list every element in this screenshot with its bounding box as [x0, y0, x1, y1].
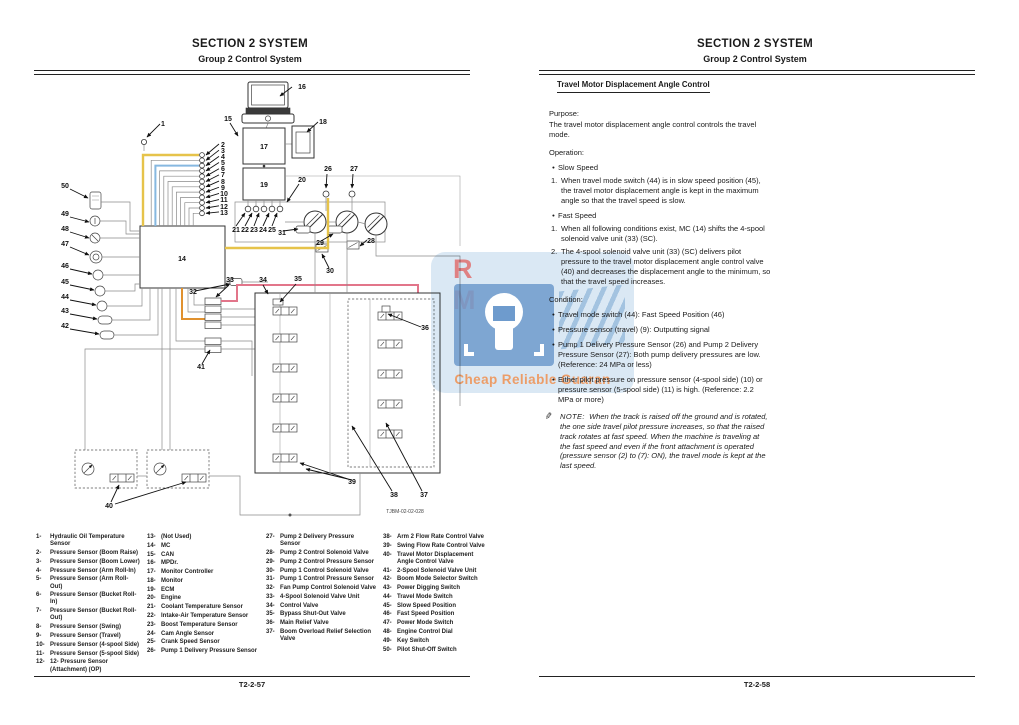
- legend-item: 40-Travel Motor Displacement Angle Contr…: [383, 552, 487, 566]
- diagram-label-39: 39: [348, 479, 356, 486]
- rp-num: 2.The 4-spool solenoid valve unit (33) (…: [549, 247, 771, 287]
- diagram-label-34: 34: [259, 277, 267, 284]
- pump2-control-solenoid: [347, 241, 359, 249]
- signal-line: [155, 166, 199, 226]
- rp-label: Condition:: [549, 295, 771, 305]
- diagram-code: TJBM-02-02-028: [386, 509, 424, 515]
- legend-item: 34-Control Valve: [266, 603, 376, 610]
- legend-item: 46-Fast Speed Position: [383, 611, 487, 618]
- diagram-label-37: 37: [420, 492, 428, 499]
- diagram-label-25: 25: [268, 227, 276, 234]
- oil-temp-sensor: [141, 139, 146, 144]
- legend-item: 29-Pump 2 Control Pressure Sensor: [266, 559, 376, 566]
- diagram-label-28: 28: [367, 238, 375, 245]
- diagram-label-16: 16: [298, 84, 306, 91]
- header-rule: [539, 70, 975, 75]
- rp-num: 1.When travel mode switch (44) is in slo…: [549, 176, 771, 206]
- legend-item: 31-Pump 1 Control Pressure Sensor: [266, 576, 376, 583]
- legend-item: 14-MC: [147, 543, 259, 550]
- legend-item: 27-Pump 2 Delivery Pressure Sensor: [266, 534, 376, 548]
- section-title: SECTION 2 SYSTEM: [30, 38, 470, 50]
- legend-item: 19-ECM: [147, 587, 259, 594]
- diagram-label-49: 49: [61, 211, 69, 218]
- diagram-label-23: 23: [250, 227, 258, 234]
- diagram-label-33: 33: [226, 277, 234, 284]
- diagram-label-7: 7: [221, 172, 225, 179]
- legend-item: 4-Pressure Sensor (Arm Roll-In): [36, 568, 140, 575]
- legend-item: 44-Travel Mode Switch: [383, 594, 487, 601]
- legend-item: 13-(Not Used): [147, 534, 259, 541]
- diagram-label-36: 36: [421, 325, 429, 332]
- rp-label: Operation:: [549, 148, 771, 158]
- legend-item: 30-Pump 1 Control Solenoid Valve: [266, 568, 376, 575]
- control-system-diagram: 1611518171920262723456789101112132122232…: [30, 76, 500, 528]
- legend-item: 18-Monitor: [147, 578, 259, 585]
- legend-item: 47-Power Mode Switch: [383, 620, 487, 627]
- footer-rule: [539, 676, 975, 677]
- diagram-label-18: 18: [319, 119, 327, 126]
- diagram-label-22: 22: [241, 227, 249, 234]
- diagram-label-31: 31: [278, 230, 286, 237]
- diagram-label-44: 44: [61, 294, 69, 301]
- diagram-label-45: 45: [61, 279, 69, 286]
- legend-item: 25-Crank Speed Sensor: [147, 639, 259, 646]
- section-title: SECTION 2 SYSTEM: [535, 38, 975, 50]
- diagram-label-29: 29: [316, 240, 324, 247]
- page-right: SECTION 2 SYSTEM Group 2 Control System …: [535, 0, 1005, 725]
- note-pencil-icon: ✎: [544, 410, 554, 423]
- legend-item: 32-Fan Pump Control Solenoid Valve: [266, 585, 376, 592]
- legend-item: 21-Coolant Temperature Sensor: [147, 604, 259, 611]
- legend-item: 37-Boom Overload Relief Selection Valve: [266, 629, 376, 643]
- pump1-delivery-sensor: [323, 191, 329, 197]
- legend-column: 13-(Not Used)14-MC15-CAN16-MPDr.17-Monit…: [147, 534, 259, 675]
- legend-item: 28-Pump 2 Control Solenoid Valve: [266, 550, 376, 557]
- page-header: SECTION 2 SYSTEM Group 2 Control System: [535, 38, 975, 64]
- legend-item: 10-Pressure Sensor (4-spool Side): [36, 642, 140, 649]
- legend-item: 1-Hydraulic Oil Temperature Sensor: [36, 534, 140, 548]
- diagram-label-13: 13: [220, 210, 228, 217]
- legend-item: 8-Pressure Sensor (Swing): [36, 624, 140, 631]
- rp-label: Purpose:: [549, 109, 771, 119]
- diagram-label-41: 41: [197, 364, 205, 371]
- rp-bullet: •Slow Speed: [549, 163, 771, 173]
- legend-item: 45-Slow Speed Position: [383, 603, 487, 610]
- legend-item: 16-MPDr.: [147, 560, 259, 567]
- legend-item: 5-Pressure Sensor (Arm Roll-Out): [36, 576, 140, 590]
- diagram-label-27: 27: [350, 166, 358, 173]
- legend-item: 48-Engine Control Dial: [383, 629, 487, 636]
- rp-para: The travel motor displacement angle cont…: [549, 120, 771, 140]
- legend-item: 33-4-Spool Solenoid Valve Unit: [266, 594, 376, 601]
- rp-num: 1.When all following conditions exist, M…: [549, 224, 771, 244]
- legend-item: 26-Pump 1 Delivery Pressure Sensor: [147, 648, 259, 655]
- diagram-label-11: 11: [220, 197, 228, 204]
- laptop-icon: [242, 82, 294, 128]
- legend-item: 42-Boom Mode Selector Switch: [383, 576, 487, 583]
- legend-item: 35-Bypass Shut-Out Valve: [266, 611, 376, 618]
- sensor-harness: [151, 144, 219, 226]
- diagram-label-32: 32: [189, 289, 197, 296]
- legend-item: 2-Pressure Sensor (Boom Raise): [36, 550, 140, 557]
- legend-item: 11-Pressure Sensor (5-spool Side): [36, 651, 140, 658]
- rp-bullet: •Fast Speed: [549, 211, 771, 221]
- legend-column: 1-Hydraulic Oil Temperature Sensor2-Pres…: [36, 534, 140, 675]
- legend-item: 20-Engine: [147, 595, 259, 602]
- rp-bullet: •Either pilot pressure on pressure senso…: [549, 375, 771, 405]
- pump2-control-pressure-sensor: [328, 226, 342, 233]
- travel-motor-left: [75, 450, 137, 488]
- diagram-label-47: 47: [61, 241, 69, 248]
- diagram-label-42: 42: [61, 323, 69, 330]
- legend-item: 36-Main Relief Valve: [266, 620, 376, 627]
- diagram-label-21: 21: [232, 227, 240, 234]
- diagram-label-46: 46: [61, 263, 69, 270]
- diagram-label-17: 17: [260, 144, 268, 151]
- legend-item: 12-12- Pressure Sensor (Attachment) (OP): [36, 659, 140, 673]
- engine-sensors: [245, 206, 283, 212]
- legend-item: 15-CAN: [147, 552, 259, 559]
- diagram-label-43: 43: [61, 308, 69, 315]
- rp-bullet: •Pressure sensor (travel) (9): Outputtin…: [549, 325, 771, 335]
- rp-bullet: •Pump 1 Delivery Pressure Sensor (26) an…: [549, 340, 771, 370]
- group-subtitle: Group 2 Control System: [30, 54, 470, 64]
- diagram-label-38: 38: [390, 492, 398, 499]
- right-page-body: Travel Motor Displacement Angle ControlP…: [549, 80, 771, 471]
- four-spool-solenoid-unit: [205, 298, 221, 329]
- legend-item: 17-Monitor Controller: [147, 569, 259, 576]
- pump1-control-pressure-sensor: [296, 226, 310, 233]
- rp-note: ✎NOTE: When the track is raised off the …: [549, 412, 771, 472]
- rp-heading: Travel Motor Displacement Angle Control: [557, 80, 710, 93]
- legend-item: 6-Pressure Sensor (Bucket Roll-In): [36, 592, 140, 606]
- footer-rule: [34, 676, 470, 677]
- diagram-label-40: 40: [105, 503, 113, 510]
- diagram-label-19: 19: [260, 182, 268, 189]
- diagram-label-15: 15: [224, 116, 232, 123]
- legend-item: 39-Swing Flow Rate Control Valve: [383, 543, 487, 550]
- rp-bullet: •Travel mode switch (44): Fast Speed Pos…: [549, 310, 771, 320]
- legend-item: 38-Arm 2 Flow Rate Control Valve: [383, 534, 487, 541]
- legend-item: 50-Pilot Shut-Off Switch: [383, 647, 487, 654]
- diagram-label-48: 48: [61, 226, 69, 233]
- legend-column: 38-Arm 2 Flow Rate Control Valve39-Swing…: [383, 534, 487, 675]
- legend-item: 7-Pressure Sensor (Bucket Roll-Out): [36, 608, 140, 622]
- two-spool-solenoid-unit: [205, 338, 221, 353]
- diagram-label-14: 14: [178, 256, 186, 263]
- travel-motor-right: [147, 450, 209, 488]
- page-number: T2-2-57: [34, 680, 470, 689]
- legend-item: 43-Power Digging Switch: [383, 585, 487, 592]
- pump2-delivery-sensor: [349, 191, 355, 197]
- legend-item: 41-2-Spool Solenoid Valve Unit: [383, 568, 487, 575]
- group-subtitle: Group 2 Control System: [535, 54, 975, 64]
- diagram-legend: 1-Hydraulic Oil Temperature Sensor2-Pres…: [36, 534, 482, 675]
- diagram-label-35: 35: [294, 276, 302, 283]
- fan-pump-icon: [365, 213, 387, 235]
- page-number: T2-2-58: [539, 680, 975, 689]
- header-rule: [34, 70, 470, 75]
- diagram-label-20: 20: [298, 177, 306, 184]
- legend-column: 27-Pump 2 Delivery Pressure Sensor28-Pum…: [266, 534, 376, 675]
- page-header: SECTION 2 SYSTEM Group 2 Control System: [30, 38, 470, 64]
- control-valve: [255, 293, 440, 473]
- legend-item: 49-Key Switch: [383, 638, 487, 645]
- diagram-label-24: 24: [259, 227, 267, 234]
- diagram-label-26: 26: [324, 166, 332, 173]
- legend-item: 22-Intake-Air Temperature Sensor: [147, 613, 259, 620]
- legend-item: 3-Pressure Sensor (Boom Lower): [36, 559, 140, 566]
- legend-item: 24-Cam Angle Sensor: [147, 631, 259, 638]
- diagram-label-30: 30: [326, 268, 334, 275]
- legend-item: 23-Boost Temperature Sensor: [147, 622, 259, 629]
- legend-item: 9-Pressure Sensor (Travel): [36, 633, 140, 640]
- monitor-box: [292, 126, 314, 158]
- diagram-label-50: 50: [61, 183, 69, 190]
- diagram-label-1: 1: [161, 121, 165, 128]
